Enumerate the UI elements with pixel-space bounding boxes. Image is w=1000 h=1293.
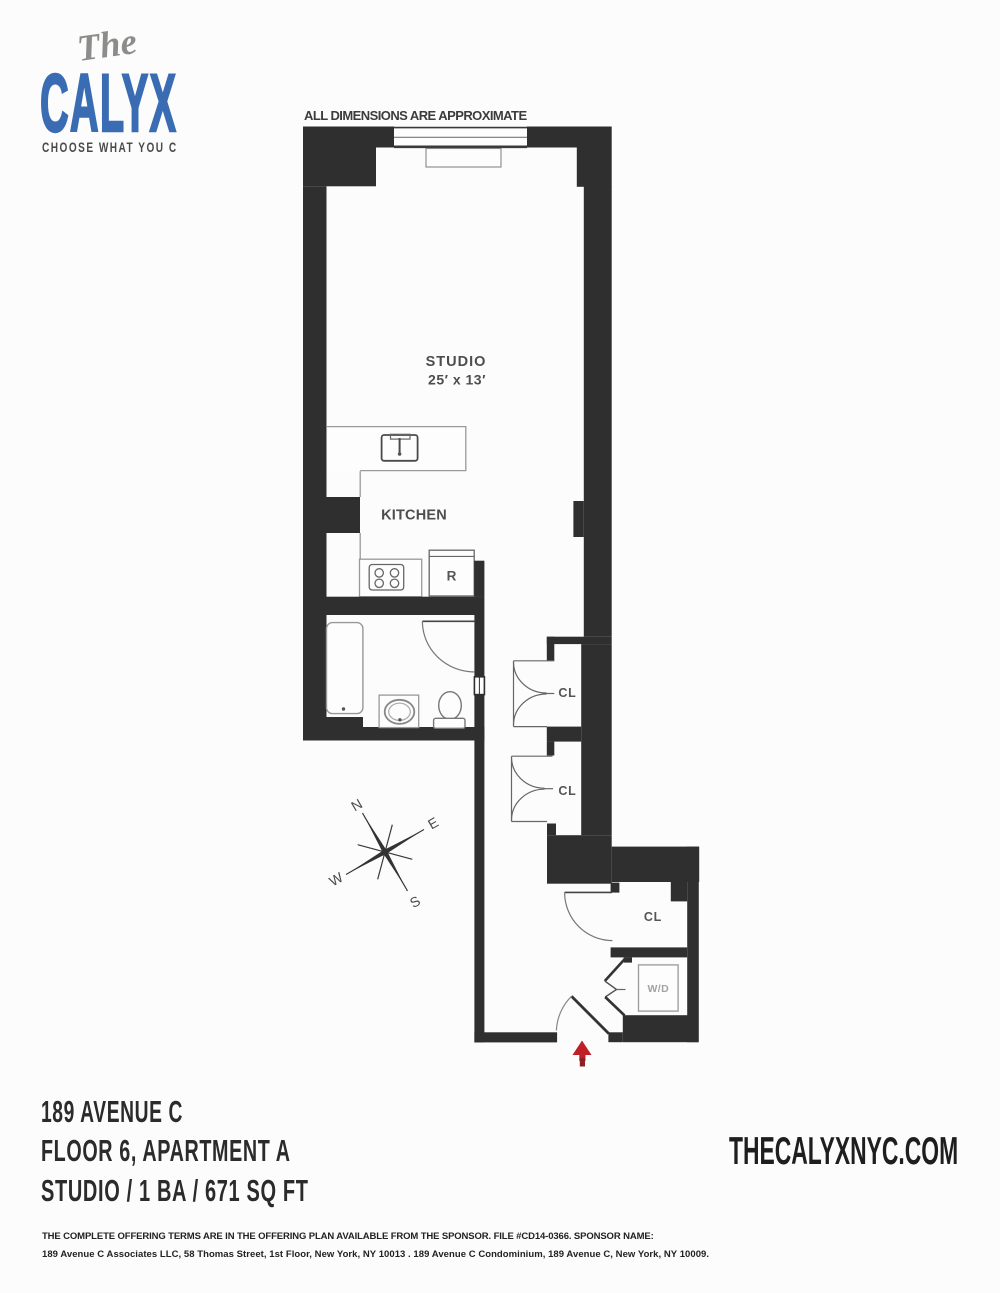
svg-text:25′ x 13′: 25′ x 13′ xyxy=(428,372,486,388)
svg-text:KITCHEN: KITCHEN xyxy=(381,508,447,524)
svg-text:N: N xyxy=(348,795,365,814)
svg-text:S: S xyxy=(407,892,423,911)
svg-text:E: E xyxy=(425,814,441,833)
svg-text:CL: CL xyxy=(558,686,576,700)
svg-text:CL: CL xyxy=(644,910,662,924)
svg-text:CL: CL xyxy=(558,784,576,798)
svg-text:ALL DIMENSIONS ARE APPROXIMATE: ALL DIMENSIONS ARE APPROXIMATE xyxy=(304,108,527,123)
svg-text:W/D: W/D xyxy=(647,983,669,995)
svg-text:STUDIO: STUDIO xyxy=(426,354,487,370)
svg-text:W: W xyxy=(326,869,346,890)
svg-text:R: R xyxy=(447,569,457,584)
